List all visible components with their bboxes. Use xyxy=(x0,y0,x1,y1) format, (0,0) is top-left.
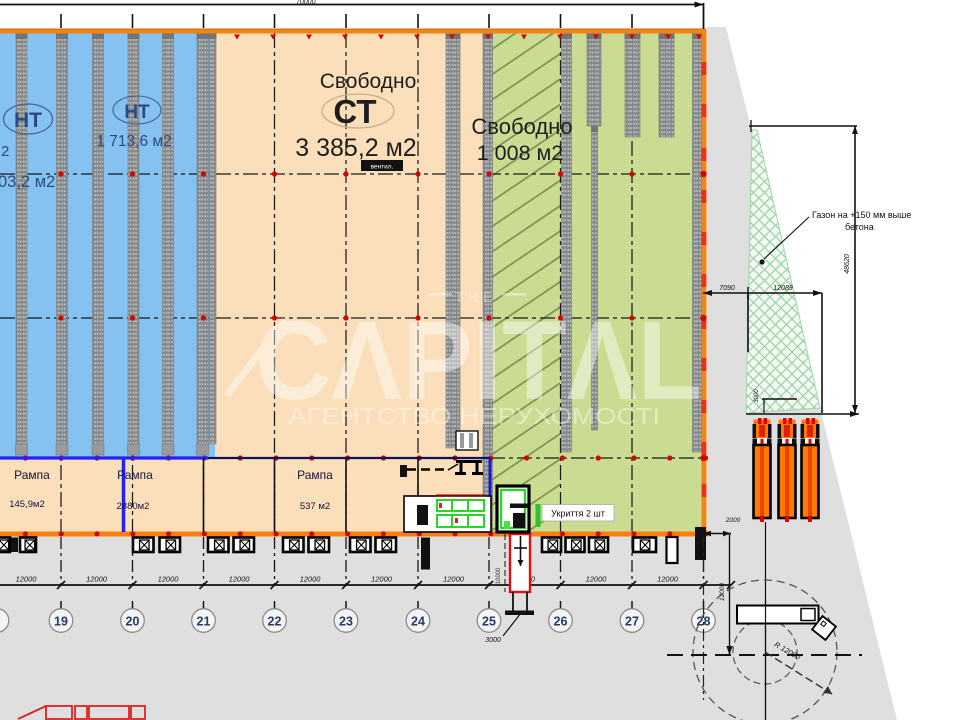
svg-text:70000: 70000 xyxy=(296,0,316,6)
svg-text:2: 2 xyxy=(1,143,9,160)
svg-text:1 713,6 м2: 1 713,6 м2 xyxy=(96,133,171,150)
svg-text:3000: 3000 xyxy=(485,637,501,644)
svg-text:24: 24 xyxy=(411,615,425,629)
svg-text:22: 22 xyxy=(268,615,282,629)
svg-text:3 385,2 м2: 3 385,2 м2 xyxy=(295,134,416,162)
svg-text:Рампа: Рампа xyxy=(14,468,50,482)
svg-text:Свободно: Свободно xyxy=(471,114,572,139)
svg-text:бетона: бетона xyxy=(845,222,874,232)
svg-text:НТ: НТ xyxy=(14,109,42,132)
svg-text:19: 19 xyxy=(54,615,68,629)
svg-text:10000: 10000 xyxy=(496,567,502,584)
svg-text:12000: 12000 xyxy=(86,575,108,584)
svg-text:Рампа: Рампа xyxy=(117,468,153,482)
svg-text:Свободно: Свободно xyxy=(320,70,417,93)
svg-text:145,9м2: 145,9м2 xyxy=(9,499,45,510)
svg-text:СТ: СТ xyxy=(333,93,376,130)
svg-text:7090: 7090 xyxy=(719,285,735,292)
svg-text:12000: 12000 xyxy=(586,575,608,584)
svg-text:12089: 12089 xyxy=(773,285,793,292)
svg-text:Укриття 2 шт: Укриття 2 шт xyxy=(551,509,605,519)
svg-text:вентил.: вентил. xyxy=(371,164,394,171)
svg-text:3000: 3000 xyxy=(754,389,760,403)
svg-text:03,2 м2: 03,2 м2 xyxy=(0,173,55,191)
svg-text:27: 27 xyxy=(625,615,639,629)
svg-text:12000: 12000 xyxy=(371,575,393,584)
svg-text:26: 26 xyxy=(554,615,568,629)
svg-text:20: 20 xyxy=(126,615,140,629)
svg-text:НТ: НТ xyxy=(124,102,150,123)
svg-text:12000: 12000 xyxy=(719,583,726,601)
svg-text:Рампа: Рампа xyxy=(297,468,333,482)
svg-text:25: 25 xyxy=(482,615,496,629)
svg-text:21: 21 xyxy=(197,615,211,629)
svg-text:12000: 12000 xyxy=(443,575,465,584)
svg-text:537 м2: 537 м2 xyxy=(300,501,330,512)
svg-text:12000: 12000 xyxy=(158,575,180,584)
svg-text:1 008 м2: 1 008 м2 xyxy=(477,141,564,165)
svg-text:12000: 12000 xyxy=(300,575,322,584)
svg-text:23: 23 xyxy=(339,615,353,629)
svg-text:12000: 12000 xyxy=(229,575,251,584)
svg-text:2000: 2000 xyxy=(725,517,741,524)
svg-text:2880м2: 2880м2 xyxy=(117,501,150,512)
svg-text:48620: 48620 xyxy=(844,254,851,274)
svg-text:12000: 12000 xyxy=(657,575,679,584)
svg-text:АГЕНТСТВО НЕРУХОМОСТІ: АГЕНТСТВО НЕРУХОМОСТІ xyxy=(288,403,660,429)
svg-text:Газон на +150 мм выше: Газон на +150 мм выше xyxy=(812,210,911,220)
svg-text:12000: 12000 xyxy=(16,575,38,584)
